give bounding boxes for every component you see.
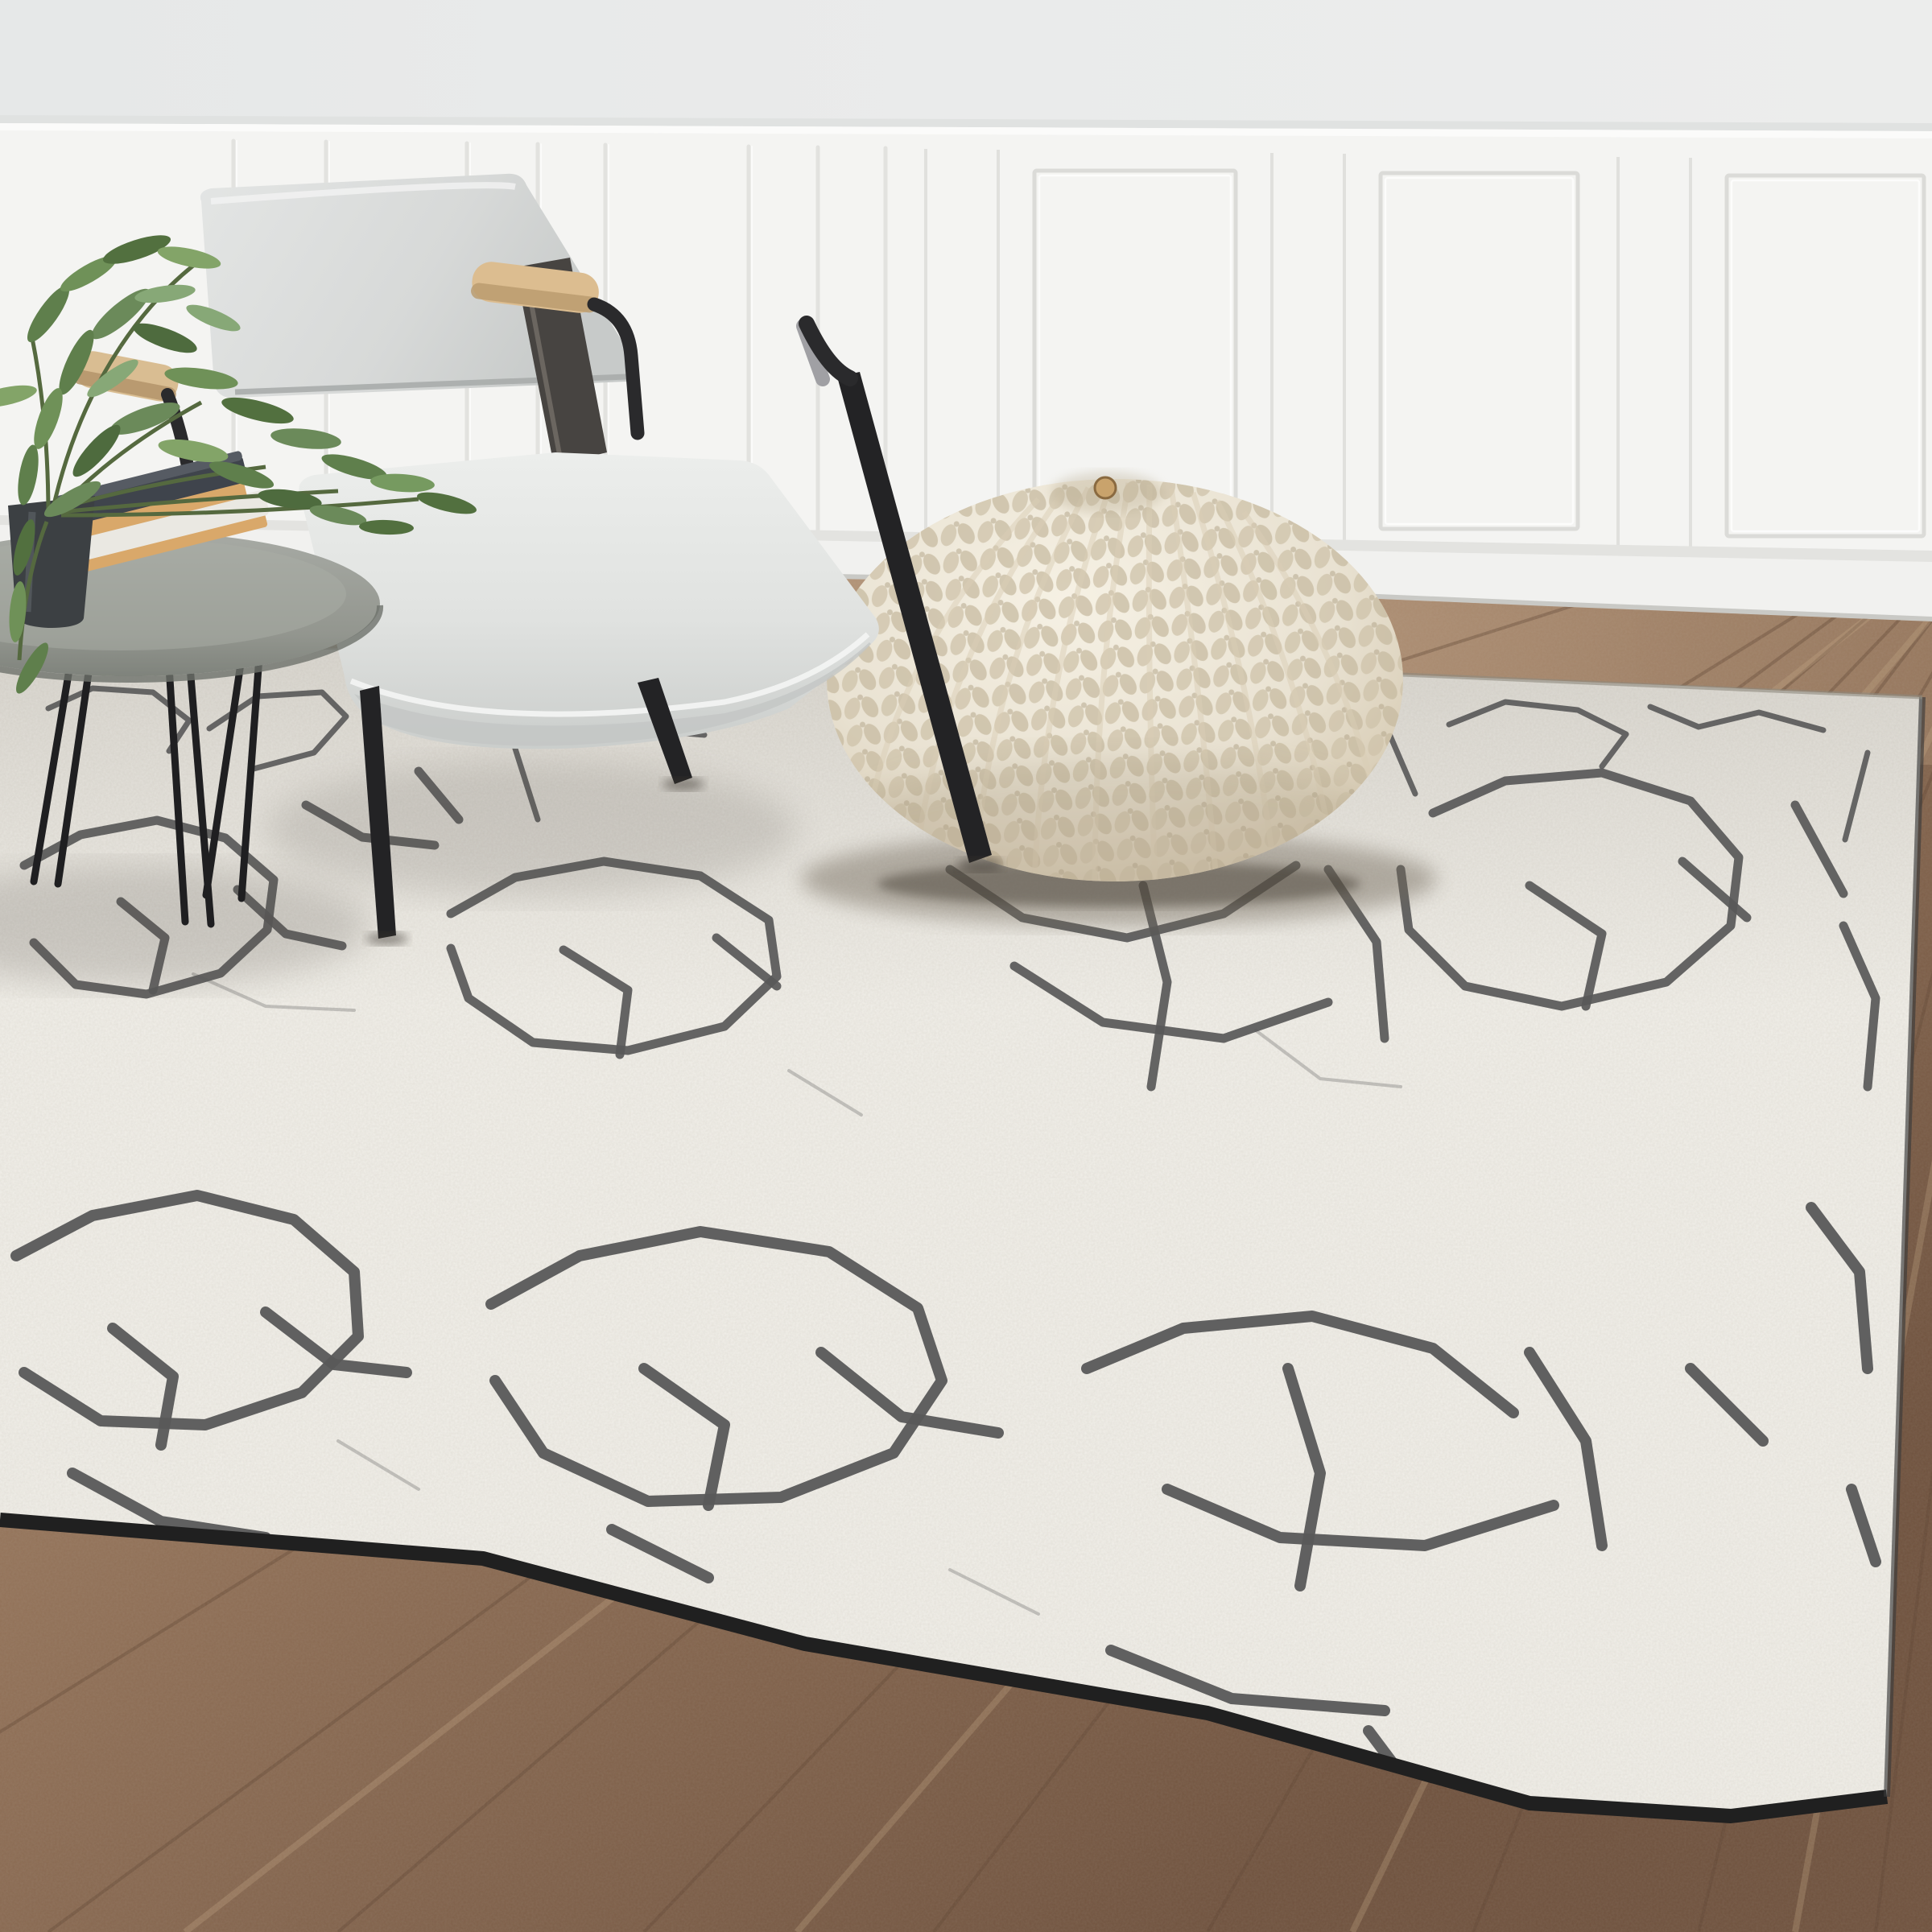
chair-shadow [266,761,797,898]
living-room-photo [0,0,1932,1932]
leg-contact-shadow [663,778,704,791]
pouf-button [1095,477,1116,498]
leg-contact-shadow [958,857,1003,872]
leg-contact-shadow [366,932,408,945]
scene-canvas [0,0,1932,1932]
